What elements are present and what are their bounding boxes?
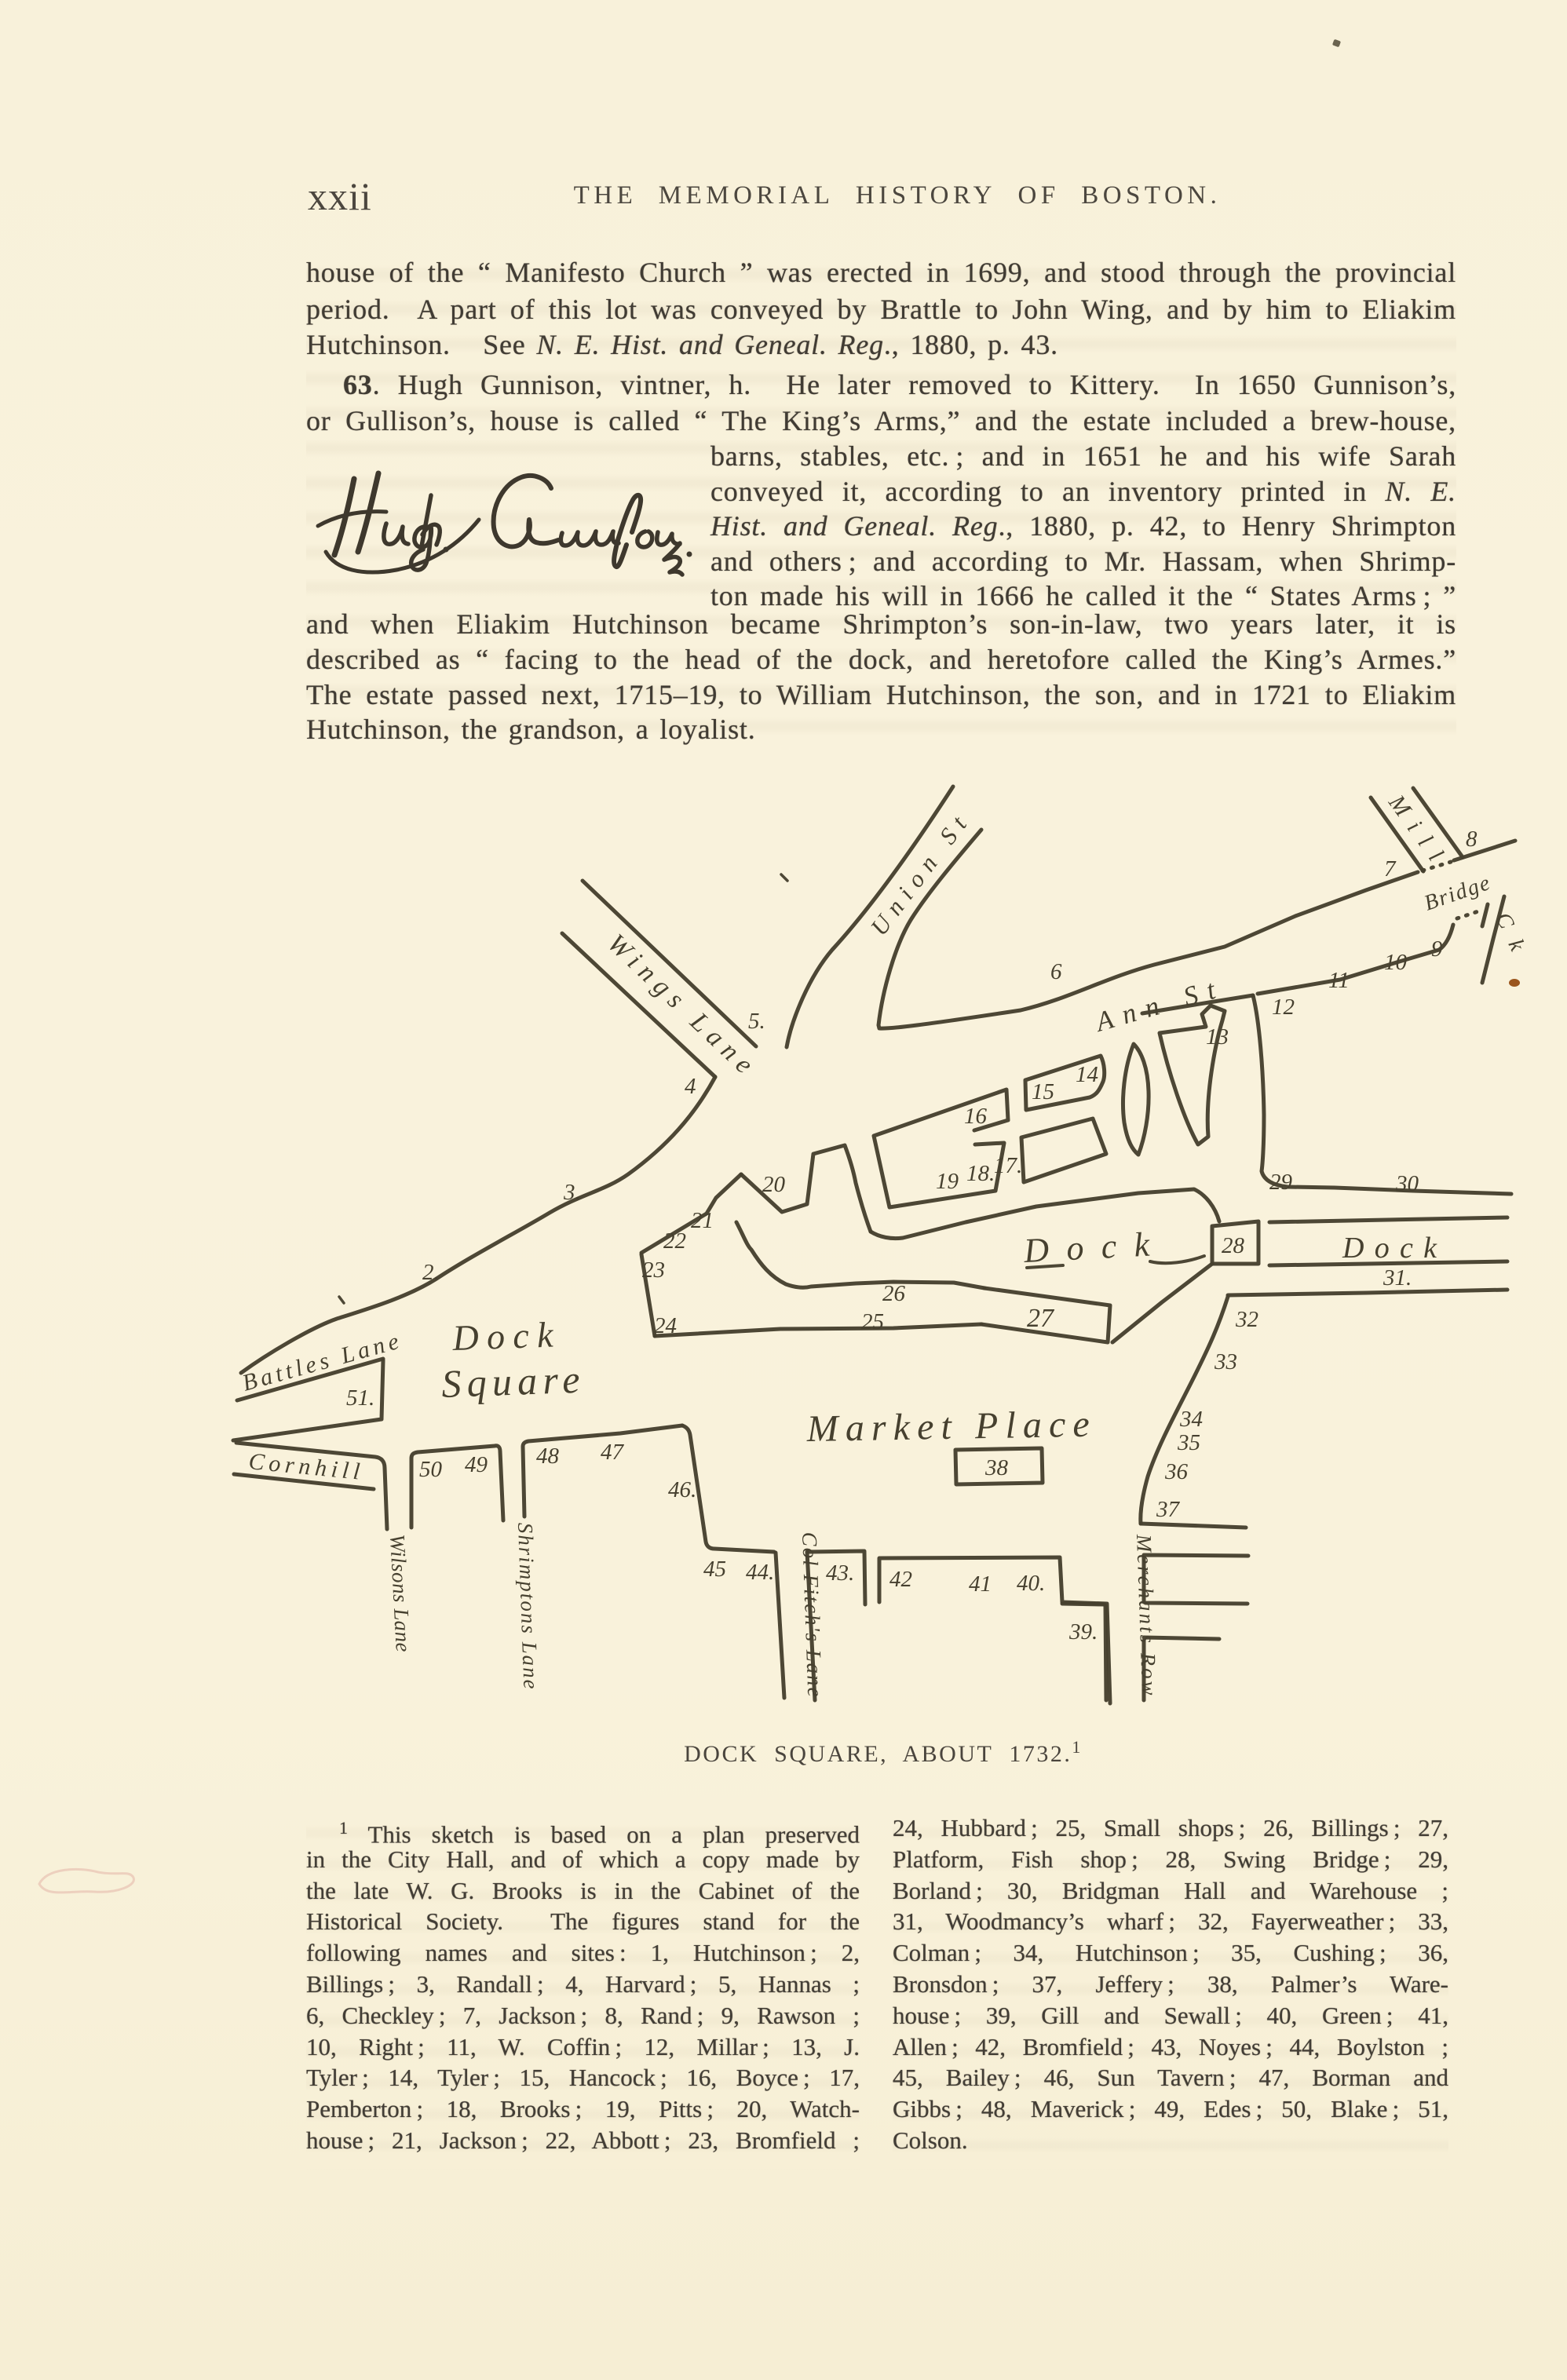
svg-text:24: 24 xyxy=(654,1313,677,1338)
svg-text:26: 26 xyxy=(882,1281,906,1306)
svg-text:18.: 18. xyxy=(966,1161,995,1186)
svg-text:8: 8 xyxy=(1466,827,1478,852)
svg-text:23: 23 xyxy=(642,1258,665,1283)
svg-text:Square: Square xyxy=(440,1357,580,1406)
svg-text:14: 14 xyxy=(1076,1062,1098,1087)
svg-text:Bridge: Bridge xyxy=(1421,871,1492,915)
svg-text:39.: 39. xyxy=(1068,1619,1098,1644)
svg-text:Dock: Dock xyxy=(1022,1225,1152,1270)
svg-text:17.: 17. xyxy=(994,1153,1022,1178)
svg-text:42: 42 xyxy=(889,1567,912,1592)
svg-text:36: 36 xyxy=(1164,1459,1189,1484)
svg-text:7: 7 xyxy=(1384,856,1397,882)
svg-text:Union St: Union St xyxy=(865,810,973,940)
svg-text:31.: 31. xyxy=(1383,1265,1412,1290)
svg-text:35: 35 xyxy=(1177,1430,1200,1455)
svg-text:2.: 2. xyxy=(422,1260,440,1285)
svg-text:49: 49 xyxy=(465,1452,488,1477)
svg-text:32: 32 xyxy=(1235,1307,1258,1332)
svg-text:21: 21 xyxy=(691,1208,714,1233)
svg-text:34: 34 xyxy=(1179,1407,1203,1432)
svg-text:12: 12 xyxy=(1272,995,1295,1020)
svg-text:9: 9 xyxy=(1431,936,1443,962)
svg-text:45: 45 xyxy=(703,1557,726,1582)
svg-text:28: 28 xyxy=(1222,1233,1245,1258)
svg-text:48: 48 xyxy=(536,1444,560,1469)
svg-text:29: 29 xyxy=(1269,1170,1293,1195)
svg-text:Shrimptons Lane: Shrimptons Lane xyxy=(513,1522,542,1689)
svg-text:4: 4 xyxy=(685,1074,696,1099)
svg-text:40.: 40. xyxy=(1017,1571,1045,1596)
svg-text:33: 33 xyxy=(1214,1349,1237,1374)
svg-text:10: 10 xyxy=(1384,950,1408,975)
svg-text:47: 47 xyxy=(601,1440,625,1465)
svg-text:Col Fitch's Lane: Col Fitch's Lane xyxy=(798,1531,827,1697)
svg-text:13: 13 xyxy=(1206,1024,1229,1049)
svg-text:3.: 3. xyxy=(563,1180,581,1205)
svg-text:38: 38 xyxy=(984,1455,1009,1480)
svg-text:50: 50 xyxy=(419,1457,443,1482)
svg-text:Wilsons Lane: Wilsons Lane xyxy=(385,1534,415,1652)
svg-text:Dock: Dock xyxy=(451,1315,555,1359)
svg-text:25: 25 xyxy=(861,1309,884,1334)
svg-text:16: 16 xyxy=(964,1104,988,1129)
svg-text:Merchants Row: Merchants Row xyxy=(1132,1533,1161,1696)
svg-text:15: 15 xyxy=(1032,1079,1054,1104)
svg-text:19: 19 xyxy=(936,1169,959,1194)
svg-text:Wings Lane: Wings Lane xyxy=(601,929,758,1079)
svg-text:6: 6 xyxy=(1050,959,1062,984)
svg-text:27: 27 xyxy=(1027,1304,1055,1333)
svg-text:22: 22 xyxy=(663,1228,686,1254)
svg-text:20: 20 xyxy=(762,1172,786,1197)
svg-text:44.: 44. xyxy=(746,1560,774,1585)
svg-text:41: 41 xyxy=(969,1571,992,1597)
svg-text:11: 11 xyxy=(1328,968,1350,993)
svg-text:46.: 46. xyxy=(668,1477,696,1502)
svg-text:Market Place: Market Place xyxy=(805,1404,1090,1450)
svg-text:30: 30 xyxy=(1395,1171,1419,1196)
svg-text:43.: 43. xyxy=(826,1561,854,1586)
svg-text:Dock: Dock xyxy=(1342,1232,1437,1265)
svg-text:5.: 5. xyxy=(748,1009,765,1034)
svg-text:37: 37 xyxy=(1156,1497,1181,1522)
svg-text:51.: 51. xyxy=(346,1385,374,1411)
